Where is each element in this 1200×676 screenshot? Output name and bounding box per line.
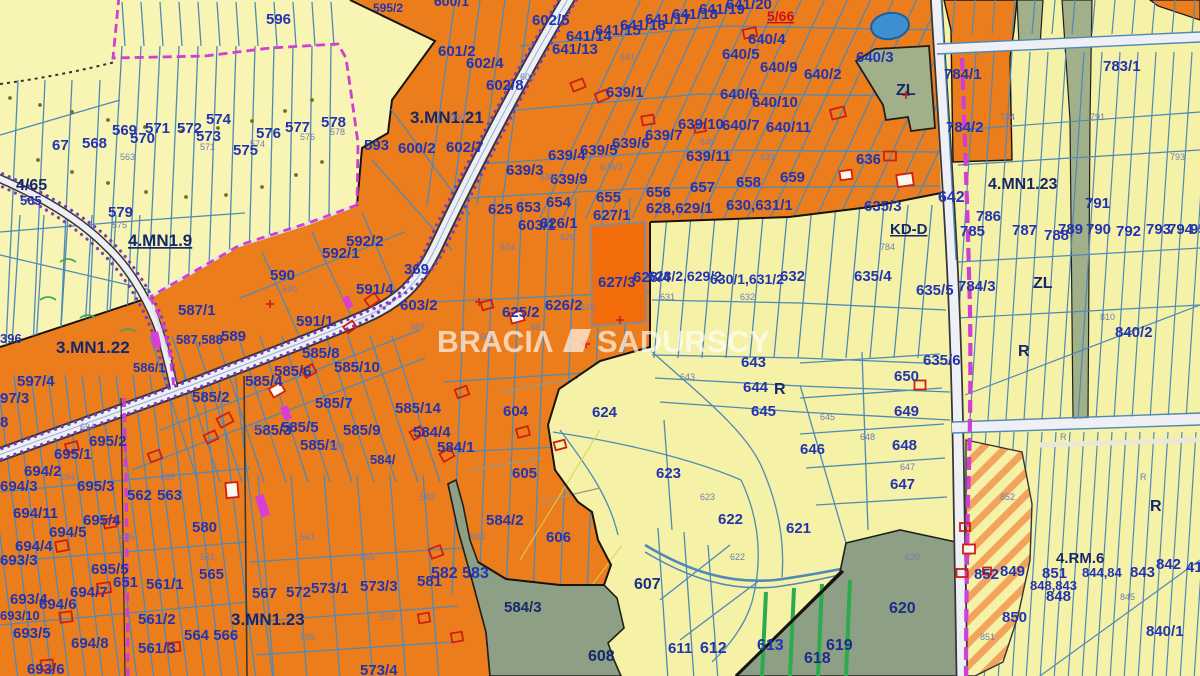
svg-text:4.MN1.23: 4.MN1.23	[988, 176, 1057, 193]
svg-text:641: 641	[620, 52, 635, 62]
svg-text:810: 810	[1100, 312, 1115, 322]
svg-text:640/7: 640/7	[722, 117, 760, 134]
svg-text:567: 567	[252, 585, 277, 602]
svg-text:3.MN1.22: 3.MN1.22	[56, 338, 130, 357]
svg-text:561/3: 561/3	[138, 640, 176, 657]
svg-text:596: 596	[266, 11, 291, 28]
svg-text:600/1: 600/1	[434, 0, 469, 9]
svg-text:571: 571	[145, 120, 170, 137]
svg-text:640/5: 640/5	[722, 46, 760, 63]
svg-text:67: 67	[52, 137, 69, 154]
svg-text:603/1: 603/1	[518, 217, 556, 234]
svg-text:396: 396	[0, 331, 22, 346]
svg-text:585/2: 585/2	[192, 389, 230, 406]
svg-text:573: 573	[380, 612, 395, 622]
svg-text:622: 622	[730, 552, 745, 562]
svg-text:849: 849	[1000, 563, 1025, 580]
svg-text:590: 590	[270, 267, 295, 284]
svg-text:648: 648	[860, 432, 875, 442]
svg-text:595/2: 595/2	[373, 1, 403, 15]
svg-text:635/4: 635/4	[854, 268, 892, 285]
svg-text:5/66: 5/66	[767, 8, 794, 24]
svg-text:651: 651	[113, 574, 138, 591]
svg-text:564 566: 564 566	[184, 627, 238, 644]
svg-text:602: 602	[520, 72, 535, 82]
svg-text:627/3: 627/3	[598, 274, 636, 291]
svg-text:605: 605	[512, 465, 537, 482]
svg-text:851: 851	[980, 632, 995, 642]
svg-text:630/1,631/2: 630/1,631/2	[710, 271, 784, 287]
svg-text:642: 642	[938, 189, 965, 206]
svg-text:604: 604	[503, 403, 529, 420]
svg-text:584/1: 584/1	[437, 439, 475, 456]
svg-text:565: 565	[360, 552, 375, 562]
svg-text:575: 575	[112, 220, 127, 230]
svg-text:562: 562	[127, 487, 152, 504]
svg-text:784: 784	[880, 242, 895, 252]
svg-text:591/4: 591/4	[356, 281, 394, 298]
svg-text:576: 576	[300, 132, 315, 142]
svg-text:639/5: 639/5	[580, 142, 618, 159]
svg-text:793: 793	[1170, 152, 1185, 162]
svg-text:607: 607	[634, 576, 661, 593]
svg-text:694/8: 694/8	[71, 635, 109, 652]
svg-text:4.MN1.9: 4.MN1.9	[128, 231, 192, 250]
svg-text:694: 694	[60, 472, 75, 482]
svg-text:784/3: 784/3	[958, 278, 996, 295]
svg-text:602/7: 602/7	[446, 139, 484, 156]
svg-text:SADURSCY: SADURSCY	[597, 324, 770, 359]
svg-text:648: 648	[892, 437, 917, 454]
svg-text:646: 646	[800, 441, 825, 458]
svg-text:632: 632	[740, 292, 755, 302]
svg-text:639/4: 639/4	[548, 147, 586, 164]
svg-text:R: R	[1060, 432, 1067, 442]
svg-text:582 583: 582 583	[431, 565, 489, 582]
svg-text:585/7: 585/7	[315, 395, 353, 412]
svg-text:612: 612	[700, 640, 727, 657]
svg-text:603/2: 603/2	[400, 297, 438, 314]
svg-text:369: 369	[404, 261, 429, 278]
svg-text:606: 606	[546, 529, 571, 546]
svg-text:587,588: 587,588	[176, 332, 223, 347]
svg-text:602/5: 602/5	[532, 12, 570, 29]
svg-text:694/5: 694/5	[49, 524, 87, 541]
svg-text:613: 613	[757, 637, 784, 654]
svg-text:584: 584	[470, 532, 485, 542]
svg-text:792: 792	[1116, 223, 1141, 240]
svg-text:639/6: 639/6	[612, 135, 650, 152]
svg-text:848: 848	[1046, 588, 1071, 605]
svg-text:845: 845	[1120, 592, 1135, 602]
svg-text:850: 850	[1002, 609, 1027, 626]
svg-text:787: 787	[1012, 222, 1037, 239]
svg-text:584/: 584/	[370, 452, 396, 467]
svg-text:587: 587	[410, 322, 425, 332]
svg-text:582: 582	[420, 492, 435, 502]
svg-text:592/1: 592/1	[322, 245, 360, 262]
svg-text:635/6: 635/6	[923, 352, 961, 369]
svg-text:BRACIΛ: BRACIΛ	[437, 324, 553, 359]
svg-text:844,84: 844,84	[1082, 565, 1123, 580]
svg-text:791: 791	[1085, 195, 1110, 212]
svg-text:693/10: 693/10	[0, 608, 40, 623]
svg-text:650: 650	[894, 368, 919, 385]
svg-text:647: 647	[890, 476, 915, 493]
svg-text:626: 626	[580, 302, 595, 312]
svg-text:565: 565	[199, 566, 224, 583]
svg-text:579: 579	[108, 204, 133, 221]
svg-text:695/1: 695/1	[54, 446, 92, 463]
svg-text:695/3: 695/3	[77, 478, 115, 495]
svg-text:693/5: 693/5	[13, 625, 51, 642]
svg-text:ZL: ZL	[1033, 275, 1053, 292]
svg-text:561: 561	[300, 532, 315, 542]
svg-text:585/10: 585/10	[334, 359, 380, 376]
svg-text:639/1: 639/1	[606, 84, 644, 101]
svg-text:571: 571	[200, 142, 215, 152]
svg-text:572: 572	[286, 584, 311, 601]
svg-text:640/10: 640/10	[752, 94, 798, 111]
svg-text:561/2: 561/2	[138, 611, 176, 628]
svg-text:840/1: 840/1	[1146, 623, 1184, 640]
svg-text:624: 624	[500, 242, 515, 252]
svg-text:639/9: 639/9	[550, 171, 588, 188]
svg-text:640/11: 640/11	[766, 119, 811, 136]
svg-text:8: 8	[0, 414, 8, 431]
svg-text:R: R	[774, 381, 786, 398]
svg-text:656: 656	[646, 184, 671, 201]
svg-text:580: 580	[192, 519, 217, 536]
svg-text:KD-D: KD-D	[890, 221, 928, 238]
svg-text:640: 640	[700, 137, 715, 147]
svg-text:621: 621	[786, 520, 811, 537]
svg-text:95: 95	[1190, 221, 1200, 238]
svg-text:640/9: 640/9	[760, 59, 798, 76]
svg-text:602/4: 602/4	[466, 55, 504, 72]
svg-text:ZL: ZL	[896, 82, 916, 99]
svg-text:631: 631	[660, 292, 675, 302]
svg-text:585/4: 585/4	[245, 373, 283, 390]
svg-text:641/20: 641/20	[726, 0, 772, 13]
svg-text:574: 574	[250, 139, 265, 149]
svg-text:843: 843	[1130, 564, 1155, 581]
svg-text:620: 620	[905, 552, 920, 562]
svg-text:639/11: 639/11	[686, 148, 731, 165]
svg-text:573/3: 573/3	[360, 578, 398, 595]
svg-text:611: 611	[668, 640, 692, 657]
svg-text:573/1: 573/1	[311, 580, 349, 597]
svg-text:585: 585	[250, 422, 265, 432]
svg-text:635/5: 635/5	[916, 282, 954, 299]
svg-text:573/4: 573/4	[360, 662, 398, 676]
svg-text:627/1: 627/1	[593, 207, 631, 224]
svg-text:626: 626	[560, 232, 575, 242]
svg-text:R: R	[1140, 472, 1147, 482]
svg-text:563: 563	[120, 152, 135, 162]
svg-text:584/2: 584/2	[486, 512, 524, 529]
svg-text:585: 585	[330, 442, 345, 452]
svg-text:587/1: 587/1	[178, 302, 216, 319]
svg-text:852: 852	[974, 566, 999, 583]
svg-text:789: 789	[1058, 221, 1083, 238]
svg-text:622: 622	[718, 511, 743, 528]
svg-text:635/3: 635/3	[864, 198, 902, 215]
svg-text:4/65: 4/65	[16, 177, 47, 194]
svg-text:589: 589	[221, 328, 246, 345]
svg-text:565: 565	[300, 632, 315, 642]
svg-text:694/6: 694/6	[39, 596, 77, 613]
svg-text:653: 653	[516, 199, 541, 216]
svg-text:647: 647	[900, 462, 915, 472]
svg-text:632: 632	[780, 268, 805, 285]
svg-text:784/1: 784/1	[944, 66, 982, 83]
svg-text:602/8: 602/8	[486, 77, 524, 94]
svg-text:97/3: 97/3	[0, 390, 29, 407]
svg-text:695: 695	[120, 532, 135, 542]
svg-text:630,631/1: 630,631/1	[726, 197, 793, 214]
svg-text:655: 655	[596, 189, 621, 206]
svg-text:791: 791	[1090, 112, 1105, 122]
svg-text:591/1: 591/1	[296, 313, 334, 330]
svg-text:561: 561	[200, 552, 215, 562]
svg-text:654: 654	[546, 194, 572, 211]
svg-text:600: 600	[450, 112, 465, 122]
svg-text:585/9: 585/9	[343, 422, 381, 439]
svg-text:842: 842	[1156, 556, 1181, 573]
svg-text:593: 593	[364, 137, 389, 154]
svg-text:784: 784	[1000, 112, 1015, 122]
svg-text:568: 568	[82, 135, 107, 152]
svg-text:620: 620	[889, 600, 916, 617]
svg-text:636: 636	[856, 151, 881, 168]
svg-text:3.MN1.23: 3.MN1.23	[231, 610, 305, 629]
svg-text:600/2: 600/2	[398, 140, 436, 157]
svg-text:578: 578	[330, 127, 345, 137]
svg-text:695/2: 695/2	[89, 433, 127, 450]
svg-text:644: 644	[743, 379, 769, 396]
svg-text:784/2: 784/2	[946, 119, 984, 136]
svg-text:852: 852	[1000, 492, 1015, 502]
svg-text:608: 608	[588, 648, 615, 665]
svg-text:790: 790	[1086, 221, 1111, 238]
svg-text:640/3: 640/3	[856, 49, 894, 66]
svg-text:585/14: 585/14	[395, 400, 442, 417]
svg-text:584/3: 584/3	[504, 599, 542, 616]
svg-text:695: 695	[160, 472, 175, 482]
svg-text:623: 623	[656, 465, 681, 482]
svg-text:586/1: 586/1	[133, 360, 166, 375]
svg-text:639/3: 639/3	[506, 162, 544, 179]
svg-text:639/7: 639/7	[645, 127, 683, 144]
svg-text:590: 590	[282, 284, 297, 294]
svg-text:624: 624	[592, 404, 618, 421]
svg-text:639/2: 639/2	[600, 162, 623, 172]
svg-text:639: 639	[540, 172, 555, 182]
svg-text:R: R	[1150, 498, 1162, 515]
svg-text:694/11: 694/11	[13, 505, 58, 522]
svg-text:561/1: 561/1	[146, 576, 184, 593]
svg-text:41: 41	[1186, 559, 1200, 576]
svg-text:628,629/1: 628,629/1	[646, 200, 713, 217]
svg-text:597/4: 597/4	[17, 373, 55, 390]
svg-text:693/3: 693/3	[0, 552, 38, 569]
svg-text:565: 565	[20, 193, 42, 208]
svg-text:574: 574	[206, 111, 232, 128]
svg-text:R: R	[1018, 343, 1030, 360]
svg-text:657: 657	[690, 179, 715, 196]
svg-text:649: 649	[894, 403, 919, 420]
svg-text:840/2: 840/2	[1115, 324, 1153, 341]
svg-text:625/2: 625/2	[502, 304, 540, 321]
svg-text:625: 625	[488, 201, 513, 218]
svg-text:693/6: 693/6	[27, 661, 65, 676]
svg-text:645: 645	[751, 403, 776, 420]
svg-text:618: 618	[804, 650, 831, 667]
svg-text:585/5: 585/5	[281, 419, 319, 436]
svg-text:640/2: 640/2	[804, 66, 842, 83]
svg-text:694/3: 694/3	[0, 478, 38, 495]
svg-text:695/4: 695/4	[83, 512, 121, 529]
svg-text:643: 643	[680, 372, 695, 382]
svg-text:563: 563	[157, 487, 182, 504]
svg-text:3.MN1.21: 3.MN1.21	[410, 108, 484, 127]
svg-text:639: 639	[760, 152, 775, 162]
svg-text:658: 658	[736, 174, 761, 191]
svg-text:659: 659	[780, 169, 805, 186]
svg-text:694: 694	[80, 422, 95, 432]
svg-text:783/1: 783/1	[1103, 58, 1141, 75]
svg-text:639/10: 639/10	[678, 116, 724, 133]
svg-text:623: 623	[700, 492, 715, 502]
svg-text:785: 785	[960, 223, 985, 240]
svg-text:626/2: 626/2	[545, 297, 583, 314]
svg-text:645: 645	[820, 412, 835, 422]
